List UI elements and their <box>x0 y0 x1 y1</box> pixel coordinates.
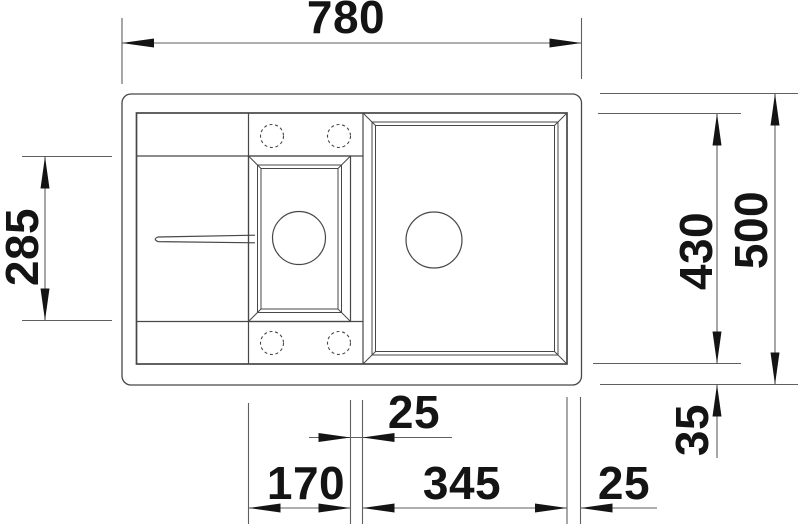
arrowhead <box>550 39 582 48</box>
arrowhead <box>41 289 50 321</box>
arrowhead <box>319 433 351 442</box>
dim-main-bowl-width: 345 <box>363 457 568 513</box>
sink-outer-rim <box>122 94 582 385</box>
arrowhead <box>41 157 50 189</box>
tap-holes <box>261 125 351 355</box>
main-bowl-corner-miter <box>555 113 568 126</box>
main-bowl-corner-miter <box>555 352 568 365</box>
dim-drainer-depth: 285 <box>0 157 112 321</box>
sink-inner-rim <box>137 113 568 364</box>
small-bowl-corner-miter <box>338 156 351 169</box>
small-bowl-corner-miter <box>249 156 262 169</box>
main-bowl-bevel-inner <box>376 126 555 352</box>
dim-label-35: 35 <box>666 404 718 456</box>
arrowhead <box>771 94 780 126</box>
main-bowl-drain <box>406 212 462 268</box>
main-bowl-corner-miter <box>363 113 376 126</box>
small-bowl-bevel-outer <box>258 165 342 313</box>
main-bowl-bevel-outer <box>372 122 558 355</box>
arrowhead <box>122 39 154 48</box>
tap-hole-dashed-circle <box>328 332 351 355</box>
tap-hole-dashed-circle <box>261 332 284 355</box>
dim-right-rim-offset: 25 <box>567 397 657 524</box>
dim-bottom-rim-offset: 35 <box>666 385 722 459</box>
drawing-svg: 780 285 500 430 <box>0 0 800 532</box>
small-bowl-corner-miter <box>249 309 262 322</box>
dim-label-285: 285 <box>0 208 48 286</box>
main-bowl-corner-miter <box>363 352 376 365</box>
small-bowl <box>249 156 351 322</box>
dim-label-500: 500 <box>725 191 777 269</box>
small-bowl-drain <box>273 212 326 265</box>
dim-bowl-area-depth: 430 <box>593 114 741 364</box>
dim-small-bowl-width: 170 <box>249 403 351 524</box>
arrowhead <box>713 332 722 364</box>
arrowhead <box>535 504 567 513</box>
main-bowl <box>363 113 567 364</box>
small-bowl-corner-miter <box>338 309 351 322</box>
arrowhead <box>363 504 395 513</box>
dim-label-345: 345 <box>423 457 501 509</box>
dim-label-25-right: 25 <box>598 457 650 509</box>
dim-label-170: 170 <box>267 457 345 509</box>
arrowhead <box>771 353 780 385</box>
dim-label-780: 780 <box>307 0 385 43</box>
small-bowl-rim <box>249 156 351 322</box>
dim-label-25-gap: 25 <box>388 386 440 438</box>
sink-outline <box>122 94 582 385</box>
tap-hole-dashed-circle <box>261 125 284 148</box>
dim-overall-width: 780 <box>122 0 582 84</box>
drainer-groove <box>155 235 255 243</box>
dimensions: 780 285 500 430 <box>0 0 798 524</box>
dim-label-430: 430 <box>670 212 722 290</box>
arrowhead <box>713 114 722 146</box>
tap-hole-dashed-circle <box>328 125 351 148</box>
sink-technical-drawing: 780 285 500 430 <box>0 0 800 532</box>
